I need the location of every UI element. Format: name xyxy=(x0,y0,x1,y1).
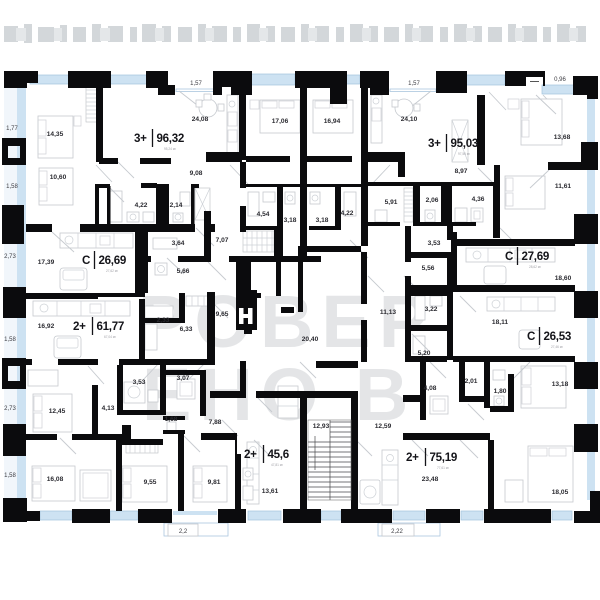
svg-text:26,53: 26,53 xyxy=(544,330,572,343)
svg-text:9,55: 9,55 xyxy=(144,479,157,486)
svg-text:97,56 м²: 97,56 м² xyxy=(458,152,470,156)
svg-text:3+: 3+ xyxy=(428,137,441,150)
svg-text:27,69: 27,69 xyxy=(522,250,550,263)
svg-text:6,33: 6,33 xyxy=(180,326,193,333)
svg-text:3+: 3+ xyxy=(134,132,147,145)
svg-text:17,39: 17,39 xyxy=(38,259,55,266)
svg-text:2,22: 2,22 xyxy=(391,529,403,535)
svg-text:27,46 м²: 27,46 м² xyxy=(551,345,563,349)
svg-text:4,22: 4,22 xyxy=(135,202,148,209)
svg-text:17,06: 17,06 xyxy=(272,118,289,125)
svg-text:16,94: 16,94 xyxy=(324,118,341,125)
svg-text:9,08: 9,08 xyxy=(190,170,203,177)
svg-text:13,68: 13,68 xyxy=(554,134,571,141)
svg-text:4,08: 4,08 xyxy=(424,385,437,392)
svg-text:3,53: 3,53 xyxy=(133,379,146,386)
svg-text:95,03: 95,03 xyxy=(451,137,479,150)
svg-text:1,57: 1,57 xyxy=(408,81,420,87)
svg-text:8,97: 8,97 xyxy=(455,168,468,175)
svg-text:С: С xyxy=(82,254,91,267)
svg-text:11,61: 11,61 xyxy=(555,183,571,190)
svg-text:75,19: 75,19 xyxy=(430,451,458,464)
svg-text:12,93: 12,93 xyxy=(313,423,330,430)
svg-text:5,91: 5,91 xyxy=(385,199,398,206)
svg-text:2,33: 2,33 xyxy=(157,317,170,324)
svg-text:1,68: 1,68 xyxy=(165,416,178,423)
svg-text:3,07: 3,07 xyxy=(177,375,190,382)
svg-text:1,58: 1,58 xyxy=(6,184,18,190)
svg-text:4,13: 4,13 xyxy=(102,405,115,412)
svg-text:77,61 м²: 77,61 м² xyxy=(437,466,449,470)
svg-text:45,6: 45,6 xyxy=(268,448,290,461)
svg-text:5,56: 5,56 xyxy=(422,265,435,272)
svg-text:1,80: 1,80 xyxy=(494,388,507,395)
svg-text:2,73: 2,73 xyxy=(4,254,16,260)
svg-text:67,04 м²: 67,04 м² xyxy=(104,335,116,339)
svg-text:1,77: 1,77 xyxy=(6,126,18,132)
svg-text:7,88: 7,88 xyxy=(209,419,222,426)
svg-text:2,2: 2,2 xyxy=(179,529,188,535)
svg-text:3,53: 3,53 xyxy=(428,240,441,247)
svg-text:24,10: 24,10 xyxy=(401,116,418,123)
svg-text:13,18: 13,18 xyxy=(552,381,569,388)
svg-text:26,69: 26,69 xyxy=(99,254,127,267)
svg-text:10,60: 10,60 xyxy=(50,174,67,181)
svg-text:14,35: 14,35 xyxy=(47,131,64,138)
svg-text:16,08: 16,08 xyxy=(47,476,64,483)
svg-text:9,65: 9,65 xyxy=(216,311,229,318)
svg-text:2+: 2+ xyxy=(73,320,86,333)
svg-text:9,81: 9,81 xyxy=(208,479,221,486)
svg-text:1,57: 1,57 xyxy=(190,81,202,87)
svg-text:2+: 2+ xyxy=(244,448,257,461)
svg-text:3,18: 3,18 xyxy=(284,217,297,224)
svg-text:47,81 м²: 47,81 м² xyxy=(271,463,283,467)
svg-text:24,08: 24,08 xyxy=(192,116,209,123)
svg-text:16,92: 16,92 xyxy=(38,323,55,330)
svg-text:0,96: 0,96 xyxy=(554,77,566,83)
svg-text:2,01: 2,01 xyxy=(465,378,478,385)
svg-text:61,77: 61,77 xyxy=(97,320,125,333)
svg-text:12,59: 12,59 xyxy=(375,423,392,430)
svg-text:96,32: 96,32 xyxy=(157,132,185,145)
svg-text:3,18: 3,18 xyxy=(316,217,329,224)
svg-text:18,05: 18,05 xyxy=(552,489,569,496)
svg-text:27,62 м²: 27,62 м² xyxy=(106,269,118,273)
svg-text:18,60: 18,60 xyxy=(555,275,572,282)
svg-text:5,66: 5,66 xyxy=(177,268,190,275)
svg-text:2+: 2+ xyxy=(406,451,419,464)
svg-text:2,14: 2,14 xyxy=(170,202,183,209)
svg-text:1,58: 1,58 xyxy=(4,337,16,343)
svg-text:18,11: 18,11 xyxy=(492,319,508,326)
svg-text:2,06: 2,06 xyxy=(426,197,439,204)
svg-text:3,22: 3,22 xyxy=(425,306,438,313)
svg-text:7,07: 7,07 xyxy=(216,237,229,244)
svg-text:С: С xyxy=(505,250,514,263)
svg-text:1,58: 1,58 xyxy=(4,473,16,479)
svg-text:3,64: 3,64 xyxy=(172,240,185,247)
svg-text:4,54: 4,54 xyxy=(257,211,270,218)
svg-text:13,61: 13,61 xyxy=(262,488,279,495)
svg-text:4,36: 4,36 xyxy=(472,196,485,203)
svg-text:20,40: 20,40 xyxy=(302,336,319,343)
svg-text:11,13: 11,13 xyxy=(380,309,396,316)
svg-text:2,73: 2,73 xyxy=(4,406,16,412)
svg-text:95,24 м²: 95,24 м² xyxy=(164,147,176,151)
svg-text:28,62 м²: 28,62 м² xyxy=(529,265,541,269)
svg-text:23,48: 23,48 xyxy=(422,476,439,483)
svg-text:5,20: 5,20 xyxy=(418,350,431,357)
svg-text:12,45: 12,45 xyxy=(49,408,66,415)
svg-text:4,22: 4,22 xyxy=(341,210,354,217)
svg-text:С: С xyxy=(527,330,536,343)
